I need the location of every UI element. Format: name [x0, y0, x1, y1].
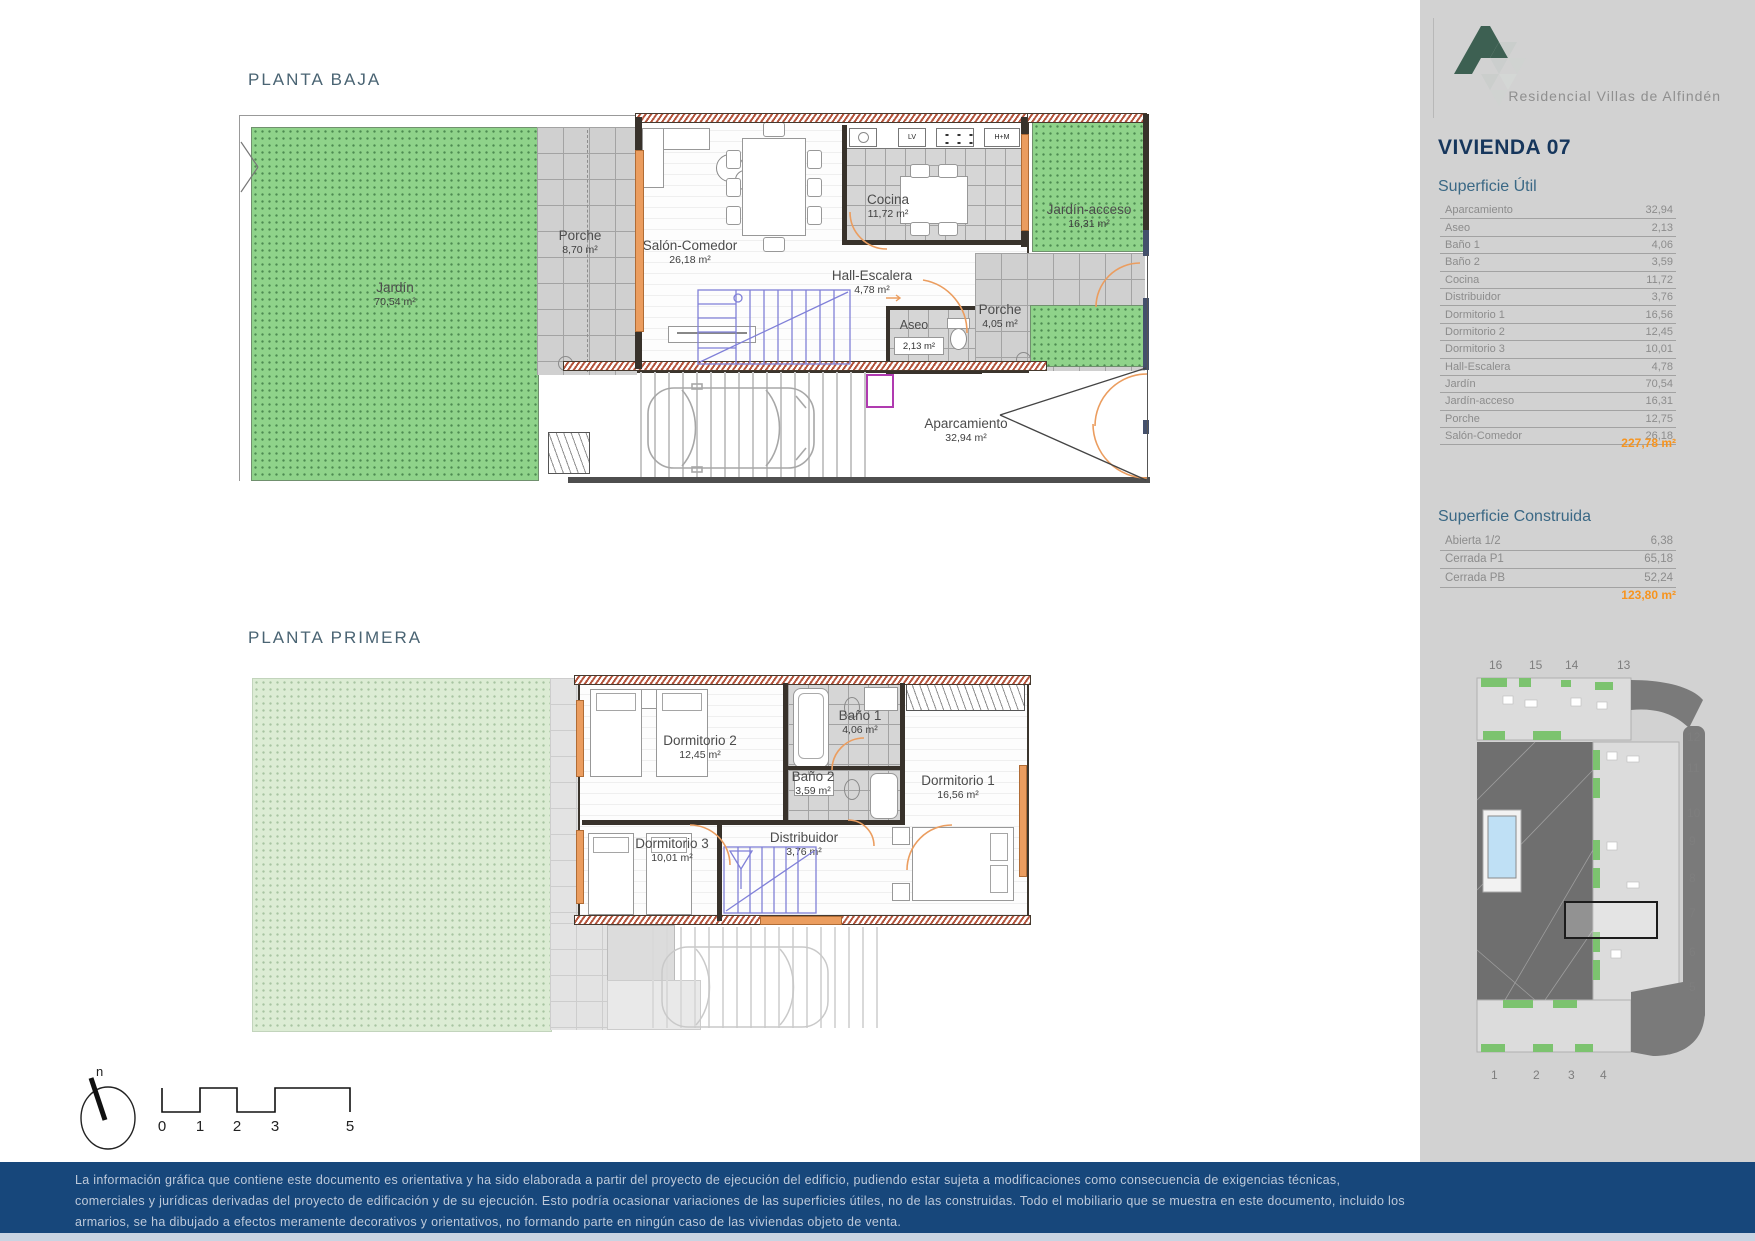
scale-tick: 2 [233, 1118, 241, 1135]
superficie-construida-table: Abierta 1/26,38Cerrada P165,18Cerrada PB… [1440, 532, 1676, 588]
surface-table-row: Cocina11,72 [1440, 272, 1676, 289]
scale-tick: 5 [346, 1118, 354, 1135]
floorplan-sheet: PLANTA BAJA Jardín 70,54 m² Porche 8,70 … [0, 0, 1755, 1241]
superficie-util-total: 227,78 m² [1440, 436, 1679, 450]
superficie-construida-total: 123,80 m² [1440, 588, 1679, 602]
footer-line: La información gráfica que contiene este… [75, 1173, 1340, 1187]
surface-table-row: Cerrada P165,18 [1440, 551, 1676, 570]
site-unit-number: 3 [1568, 1068, 1575, 1082]
site-unit-number: 14 [1565, 658, 1578, 672]
surface-table-row: Hall-Escalera4,78 [1440, 359, 1676, 376]
site-map: 16 15 14 13 12 11 10 9 8 7 6 5 1 2 3 4 [1475, 650, 1715, 1090]
site-unit-number: 8 [1689, 871, 1696, 885]
site-unit-number: 15 [1529, 658, 1542, 672]
superficie-construida-heading: Superficie Construida [1438, 508, 1591, 526]
planta-primera-title: PLANTA PRIMERA [248, 628, 422, 648]
surface-table-row: Aseo2,13 [1440, 219, 1676, 236]
surface-table-row: Baño 14,06 [1440, 237, 1676, 254]
site-unit-number: 12 [1687, 730, 1700, 744]
planta-baja-title: PLANTA BAJA [248, 70, 381, 90]
scale-tick: 3 [271, 1118, 279, 1135]
surface-table-row: Cerrada PB52,24 [1440, 569, 1676, 588]
site-unit-number: 16 [1489, 658, 1502, 672]
unit-title: VIVIENDA 07 [1438, 136, 1571, 160]
footer-line: comerciales y jurídicas derivadas del pr… [75, 1194, 1405, 1208]
site-unit-number: 2 [1533, 1068, 1540, 1082]
footer-disclaimer: La información gráfica que contiene este… [0, 1162, 1755, 1233]
compass-icon [78, 1068, 148, 1158]
footer-line: armarios, se ha dibujado a efectos meram… [75, 1215, 901, 1229]
surface-table-row: Dormitorio 310,01 [1440, 341, 1676, 358]
surface-table-row: Jardín70,54 [1440, 376, 1676, 393]
highlighted-unit-7 [1565, 902, 1657, 938]
site-unit-number: 5 [1689, 980, 1696, 994]
brand-name: Residencial Villas de Alfindén [1508, 88, 1721, 104]
surface-table-row: Aparcamiento32,94 [1440, 202, 1676, 219]
surface-table-row: Distribuidor3,76 [1440, 289, 1676, 306]
site-unit-number: 7 [1689, 906, 1696, 920]
planta-baja-plan: Jardín 70,54 m² Porche 8,70 m² LV H+M Co… [238, 112, 1156, 492]
planta-primera-plan: Dormitorio 2 12,45 m² Baño 1 4,06 m² Bañ… [252, 675, 1157, 1045]
site-unit-number: 9 [1689, 834, 1696, 848]
scale-tick: 0 [158, 1118, 166, 1135]
scale-tick: 1 [196, 1118, 204, 1135]
surface-table-row: Abierta 1/26,38 [1440, 532, 1676, 551]
ground-floor-overlay [238, 112, 1156, 492]
site-unit-number: 13 [1617, 658, 1630, 672]
scale-bar [160, 1086, 360, 1118]
site-map-drawing [1475, 650, 1715, 1090]
site-unit-number: 10 [1687, 806, 1700, 820]
site-unit-number: 6 [1689, 945, 1696, 959]
site-unit-number: 4 [1600, 1068, 1607, 1082]
surface-table-row: Porche12,75 [1440, 411, 1676, 428]
first-floor-overlay [252, 675, 1157, 1045]
site-unit-number: 11 [1687, 761, 1699, 775]
surface-table-row: Baño 23,59 [1440, 254, 1676, 271]
divider [1433, 18, 1434, 118]
site-unit-number: 1 [1491, 1068, 1498, 1082]
surface-table-row: Dormitorio 116,56 [1440, 306, 1676, 323]
superficie-util-table: Aparcamiento32,94Aseo2,13Baño 14,06Baño … [1440, 202, 1676, 445]
superficie-util-heading: Superficie Útil [1438, 178, 1537, 196]
surface-table-row: Jardín-acceso16,31 [1440, 393, 1676, 410]
surface-table-row: Dormitorio 212,45 [1440, 324, 1676, 341]
footer-strip [0, 1233, 1755, 1241]
